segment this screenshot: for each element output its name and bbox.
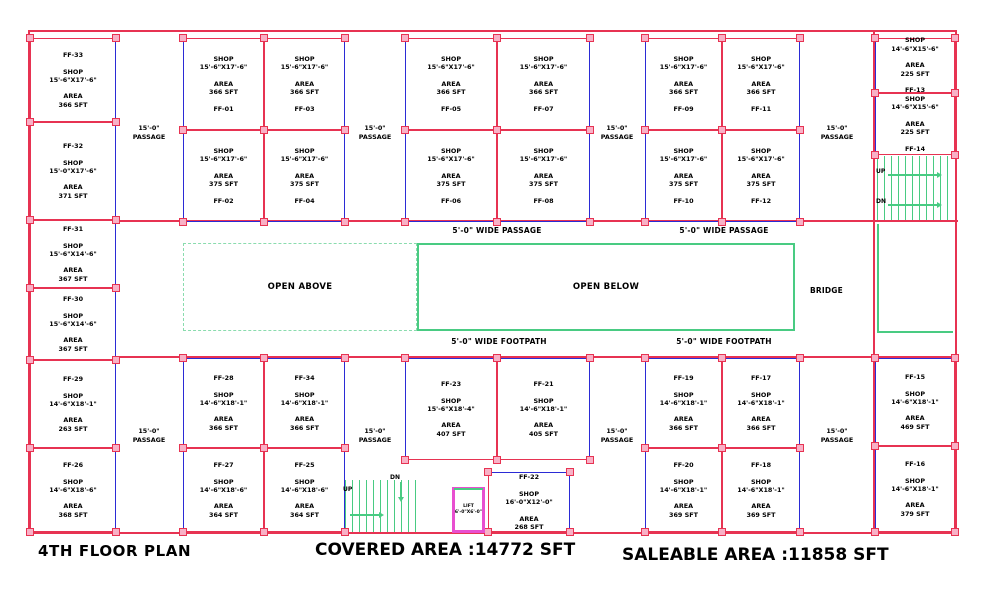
room-label: FF-18 SHOP 14'-6"X18'-1" AREA 369 SFT [737,461,784,519]
stair-arrow-up-bottom [350,514,380,516]
passage-label: 15'-0" PASSAGE [588,124,646,142]
wide-passage-label-right: 5'-0" WIDE PASSAGE [665,226,783,235]
room-FF-07: SHOP 15'-6"X17'-6" AREA 366 SFT FF-07 [497,38,590,130]
column-marker [341,444,349,452]
column-marker [484,528,492,536]
room-FF-25: FF-25 SHOP 14'-6"X18'-6" AREA 364 SFT [264,448,345,532]
column-marker [401,34,409,42]
column-marker [641,218,649,226]
column-marker [641,34,649,42]
column-marker [796,444,804,452]
room-FF-30: FF-30 SHOP 15'-6"X14'-6" AREA 367 SFT [30,288,116,360]
column-marker [260,354,268,362]
room-label: SHOP 15'-6"X17'-6" AREA 366 SFT FF-03 [281,55,328,113]
stair-up-label-bottom: UP [343,486,352,493]
column-marker [179,34,187,42]
bridge-path-horizontal [877,331,953,333]
room-FF-04: SHOP 15'-6"X17'-6" AREA 375 SFT FF-04 [264,130,345,222]
room-FF-27: FF-27 SHOP 14'-6"X18'-6" AREA 364 SFT [183,448,264,532]
column-marker [179,444,187,452]
open-above-label: OPEN ABOVE [268,282,333,292]
room-label: SHOP 15'-6"X17'-6" AREA 375 SFT FF-04 [281,147,328,205]
stair-arrow-up-top [888,174,938,176]
wide-passage-label-left: 5'-0" WIDE PASSAGE [438,226,556,235]
column-marker [179,126,187,134]
column-marker [796,34,804,42]
column-marker [871,89,879,97]
column-marker [871,354,879,362]
room-FF-01: SHOP 15'-6"X17'-6" AREA 366 SFT FF-01 [183,38,264,130]
room-label: SHOP 15'-6"X17'-6" AREA 366 SFT FF-05 [427,55,474,113]
room-FF-23: FF-23 SHOP 15'-6"X18'-4" AREA 407 SFT [405,358,497,460]
column-marker [341,218,349,226]
column-marker [586,456,594,464]
column-marker [493,354,501,362]
column-marker [112,118,120,126]
room-label: FF-16 SHOP 14'-6"X18'-1" AREA 379 SFT [891,460,938,518]
room-FF-09: SHOP 15'-6"X17'-6" AREA 366 SFT FF-09 [645,38,722,130]
wide-footpath-label-left: 5'-0" WIDE FOOTPATH [440,337,558,346]
stair-arrow-dn-bottom [400,482,402,498]
room-FF-29: FF-29 SHOP 14'-6"X18'-1" AREA 263 SFT [30,360,116,448]
room-label: FF-29 SHOP 14'-6"X18'-1" AREA 263 SFT [49,375,96,433]
column-marker [484,468,492,476]
room-label: SHOP 15'-6"X17'-6" AREA 375 SFT FF-06 [427,147,474,205]
column-marker [26,284,34,292]
column-marker [871,528,879,536]
room-FF-14: SHOP 14'-6"X15'-6" AREA 225 SFT FF-14 [875,93,955,155]
room-FF-21: FF-21 SHOP 14'-6"X18'-1" AREA 405 SFT [497,358,590,460]
column-marker [260,126,268,134]
room-label: FF-30 SHOP 15'-6"X14'-6" AREA 367 SFT [49,295,96,353]
room-FF-05: SHOP 15'-6"X17'-6" AREA 366 SFT FF-05 [405,38,497,130]
column-marker [586,34,594,42]
room-label: FF-19 SHOP 14'-6"X18'-1" AREA 366 SFT [660,374,707,432]
room-FF-06: SHOP 15'-6"X17'-6" AREA 375 SFT FF-06 [405,130,497,222]
column-marker [179,218,187,226]
room-FF-15: FF-15 SHOP 14'-6"X18'-1" AREA 469 SFT [875,358,955,446]
column-marker [26,118,34,126]
column-marker [586,218,594,226]
column-marker [112,356,120,364]
staircase-top-right [877,156,953,220]
column-marker [260,528,268,536]
passage-label: 15'-0" PASSAGE [346,124,404,142]
room-label: SHOP 15'-6"X17'-6" AREA 366 SFT FF-11 [737,55,784,113]
column-marker [871,34,879,42]
passage-label: 15'-0" PASSAGE [808,124,866,142]
room-label: SHOP 15'-6"X17'-6" AREA 366 SFT FF-07 [520,55,567,113]
column-marker [951,34,959,42]
room-label: SHOP 15'-6"X17'-6" AREA 366 SFT FF-01 [200,55,247,113]
column-marker [493,218,501,226]
column-marker [641,354,649,362]
wide-footpath-label-right: 5'-0" WIDE FOOTPATH [665,337,783,346]
column-marker [112,528,120,536]
column-marker [179,354,187,362]
room-FF-17: FF-17 SHOP 14'-6"X18'-1" AREA 366 SFT [722,358,800,448]
room-label: FF-17 SHOP 14'-6"X18'-1" AREA 366 SFT [737,374,784,432]
floor-plan-title: 4TH FLOOR PLAN [38,542,191,560]
room-FF-32: FF-32 SHOP 15'-0"X17'-6" AREA 371 SFT [30,122,116,220]
room-label: FF-34 SHOP 14'-6"X18'-1" AREA 366 SFT [281,374,328,432]
room-label: SHOP 14'-6"X15'-6" AREA 225 SFT FF-13 [891,36,938,94]
room-label: SHOP 15'-6"X17'-6" AREA 375 SFT FF-10 [660,147,707,205]
column-marker [26,34,34,42]
room-FF-31: FF-31 SHOP 15'-6"X14'-6" AREA 367 SFT [30,220,116,288]
room-label: FF-33 SHOP 15'-6"X17'-6" AREA 366 SFT [49,51,96,109]
room-label: FF-27 SHOP 14'-6"X18'-6" AREA 364 SFT [200,461,247,519]
room-label: FF-25 SHOP 14'-6"X18'-6" AREA 364 SFT [281,461,328,519]
column-marker [260,34,268,42]
room-label: FF-32 SHOP 15'-0"X17'-6" AREA 371 SFT [49,142,96,200]
room-FF-22: FF-22 SHOP 16'-0"X12'-0" AREA 268 SFT [488,472,570,532]
room-FF-13: SHOP 14'-6"X15'-6" AREA 225 SFT FF-13 [875,38,955,93]
stair-arrow-dn-top [888,204,938,206]
room-FF-12: SHOP 15'-6"X17'-6" AREA 375 SFT FF-12 [722,130,800,222]
stair-dn-label-bottom: DN [390,474,400,481]
column-marker [112,216,120,224]
room-FF-18: FF-18 SHOP 14'-6"X18'-1" AREA 369 SFT [722,448,800,532]
room-FF-11: SHOP 15'-6"X17'-6" AREA 366 SFT FF-11 [722,38,800,130]
room-label: SHOP 15'-6"X17'-6" AREA 366 SFT FF-09 [660,55,707,113]
room-FF-26: FF-26 SHOP 14'-6"X18'-6" AREA 368 SFT [30,448,116,532]
column-marker [951,89,959,97]
passage-label: 15'-0" PASSAGE [120,427,178,445]
open-above-zone: OPEN ABOVE [183,243,417,331]
open-below-label: OPEN BELOW [573,282,639,292]
covered-area-title: COVERED AREA :14772 SFT [315,540,575,560]
lift-shaft: LIFT 6'-0"X6'-0" [452,487,485,533]
column-marker [493,456,501,464]
passage-label: 15'-0" PASSAGE [346,427,404,445]
column-marker [401,456,409,464]
column-marker [951,354,959,362]
room-label: FF-31 SHOP 15'-6"X14'-6" AREA 367 SFT [49,225,96,283]
room-label: FF-21 SHOP 14'-6"X18'-1" AREA 405 SFT [520,380,567,438]
passage-label: 15'-0" PASSAGE [120,124,178,142]
column-marker [796,126,804,134]
bridge-label: BRIDGE [810,286,843,295]
column-marker [179,528,187,536]
column-marker [718,444,726,452]
column-marker [493,34,501,42]
column-marker [112,284,120,292]
column-marker [493,126,501,134]
column-marker [566,468,574,476]
column-marker [718,126,726,134]
column-marker [796,528,804,536]
room-label: FF-20 SHOP 14'-6"X18'-1" AREA 369 SFT [660,461,707,519]
column-marker [341,528,349,536]
room-label: FF-26 SHOP 14'-6"X18'-6" AREA 368 SFT [49,461,96,519]
room-FF-03: SHOP 15'-6"X17'-6" AREA 366 SFT FF-03 [264,38,345,130]
room-label: FF-28 SHOP 14'-6"X18'-1" AREA 366 SFT [200,374,247,432]
room-FF-34: FF-34 SHOP 14'-6"X18'-1" AREA 366 SFT [264,358,345,448]
open-below-zone: OPEN BELOW [417,243,795,331]
passage-label: 15'-0" PASSAGE [588,427,646,445]
column-marker [586,354,594,362]
column-marker [26,216,34,224]
column-marker [641,444,649,452]
column-marker [566,528,574,536]
room-label: FF-23 SHOP 15'-6"X18'-4" AREA 407 SFT [427,380,474,438]
passage-label: 15'-0" PASSAGE [808,427,866,445]
column-marker [260,218,268,226]
room-FF-28: FF-28 SHOP 14'-6"X18'-1" AREA 366 SFT [183,358,264,448]
column-marker [341,354,349,362]
column-marker [951,442,959,450]
floor-plan-canvas: SHOP 15'-6"X17'-6" AREA 366 SFT FF-01SHO… [0,0,986,606]
column-marker [260,444,268,452]
room-label: SHOP 15'-6"X17'-6" AREA 375 SFT FF-02 [200,147,247,205]
column-marker [401,218,409,226]
room-FF-02: SHOP 15'-6"X17'-6" AREA 375 SFT FF-02 [183,130,264,222]
column-marker [718,354,726,362]
column-marker [112,444,120,452]
column-marker [718,34,726,42]
column-marker [26,356,34,364]
stair-dn-label-top: DN [876,198,886,205]
column-marker [26,444,34,452]
column-marker [641,528,649,536]
stair-up-label-top: UP [876,168,885,175]
column-marker [951,528,959,536]
column-marker [718,218,726,226]
column-marker [718,528,726,536]
column-marker [796,218,804,226]
room-label: SHOP 15'-6"X17'-6" AREA 375 SFT FF-12 [737,147,784,205]
room-label: FF-22 SHOP 16'-0"X12'-0" AREA 268 SFT [505,473,552,531]
room-FF-08: SHOP 15'-6"X17'-6" AREA 375 SFT FF-08 [497,130,590,222]
room-label: SHOP 14'-6"X15'-6" AREA 225 SFT FF-14 [891,95,938,153]
room-label: SHOP 15'-6"X17'-6" AREA 375 SFT FF-08 [520,147,567,205]
column-marker [871,442,879,450]
bridge-path-vertical [877,224,879,332]
column-marker [951,151,959,159]
column-marker [871,151,879,159]
staircase-bottom [345,480,417,532]
column-marker [112,34,120,42]
column-marker [401,354,409,362]
room-FF-16: FF-16 SHOP 14'-6"X18'-1" AREA 379 SFT [875,446,955,532]
column-marker [26,528,34,536]
saleable-area-title: SALEABLE AREA :11858 SFT [622,545,889,565]
room-FF-10: SHOP 15'-6"X17'-6" AREA 375 SFT FF-10 [645,130,722,222]
column-marker [341,34,349,42]
room-label: FF-15 SHOP 14'-6"X18'-1" AREA 469 SFT [891,373,938,431]
room-FF-19: FF-19 SHOP 14'-6"X18'-1" AREA 366 SFT [645,358,722,448]
room-FF-33: FF-33 SHOP 15'-6"X17'-6" AREA 366 SFT [30,38,116,122]
room-FF-20: FF-20 SHOP 14'-6"X18'-1" AREA 369 SFT [645,448,722,532]
column-marker [796,354,804,362]
